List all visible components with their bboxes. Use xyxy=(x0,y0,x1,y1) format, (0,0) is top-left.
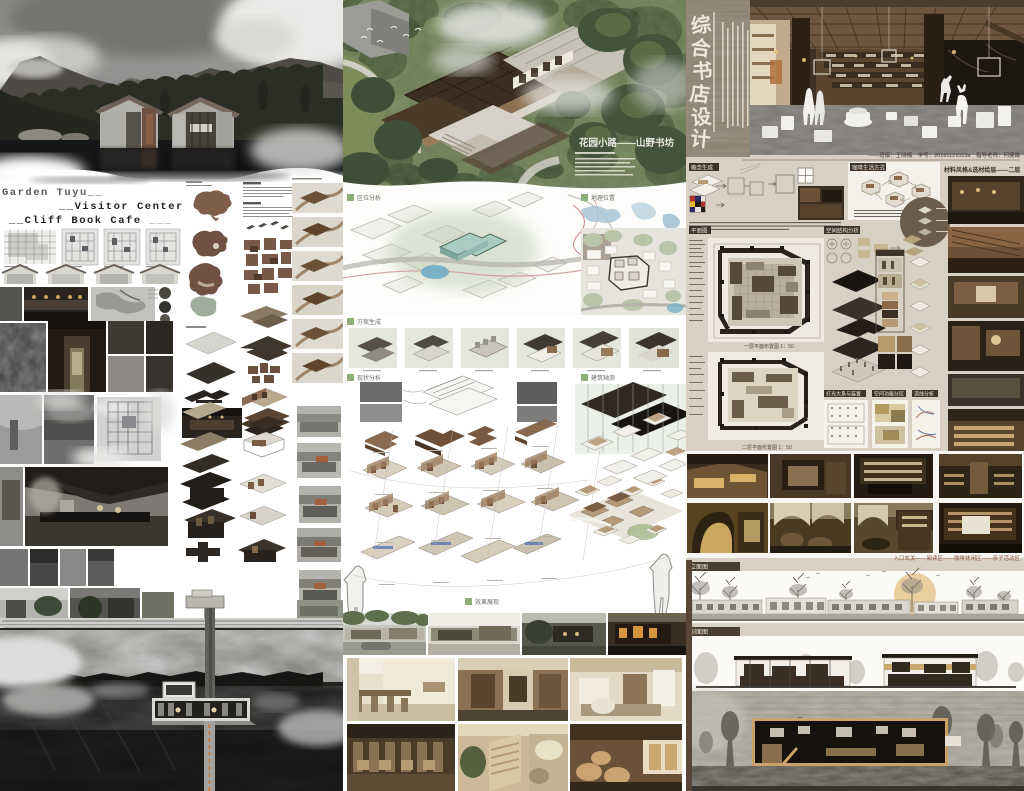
svg-text:现状分析: 现状分析 xyxy=(357,374,381,382)
svg-text:建筑轴测: 建筑轴测 xyxy=(591,374,615,382)
svg-text:流线分析: 流线分析 xyxy=(914,391,934,398)
svg-text:剖面图: 剖面图 xyxy=(690,628,708,636)
svg-text:店: 店 xyxy=(688,82,711,107)
svg-text:咖啡生活方式: 咖啡生活方式 xyxy=(852,164,886,172)
svg-text:一层平面布置图 1：50: 一层平面布置图 1：50 xyxy=(744,343,794,350)
svg-text:立面图: 立面图 xyxy=(690,563,708,571)
svg-text:花园小路——山野书坊: 花园小路——山野书坊 xyxy=(579,137,675,149)
svg-text:计: 计 xyxy=(690,127,712,152)
svg-text:平面图: 平面图 xyxy=(691,227,708,235)
svg-text:灯光大系与装置: 灯光大系与装置 xyxy=(826,391,861,398)
svg-text:空间结构分析: 空间结构分析 xyxy=(826,227,860,235)
svg-text:合: 合 xyxy=(690,35,713,61)
svg-text:区位分析: 区位分析 xyxy=(357,194,381,202)
svg-text:入口玄关——阅读区——咖啡休闲区——亲子活动区: 入口玄关——阅读区——咖啡休闲区——亲子活动区 xyxy=(893,554,1020,562)
svg-text:设: 设 xyxy=(690,105,712,130)
svg-text:方案生成: 方案生成 xyxy=(357,318,381,326)
svg-text:效果展现: 效果展现 xyxy=(475,598,499,606)
svg-text:——班级：王晓楠 学号：20161121023a 指导老师：: ——班级：王晓楠 学号：20161121023a 指导老师：何健霖 xyxy=(868,151,1020,159)
svg-text:地理位置: 地理位置 xyxy=(591,194,615,202)
svg-text:书: 书 xyxy=(691,59,713,84)
svg-text:空间功能分区: 空间功能分区 xyxy=(874,391,904,398)
svg-text:概念生成: 概念生成 xyxy=(691,164,714,172)
svg-text:综: 综 xyxy=(689,12,712,39)
svg-text:材料风格&选材绘层——二层: 材料风格&选材绘层——二层 xyxy=(943,166,1020,174)
svg-text:二层平面布置图 1：50: 二层平面布置图 1：50 xyxy=(742,444,792,451)
